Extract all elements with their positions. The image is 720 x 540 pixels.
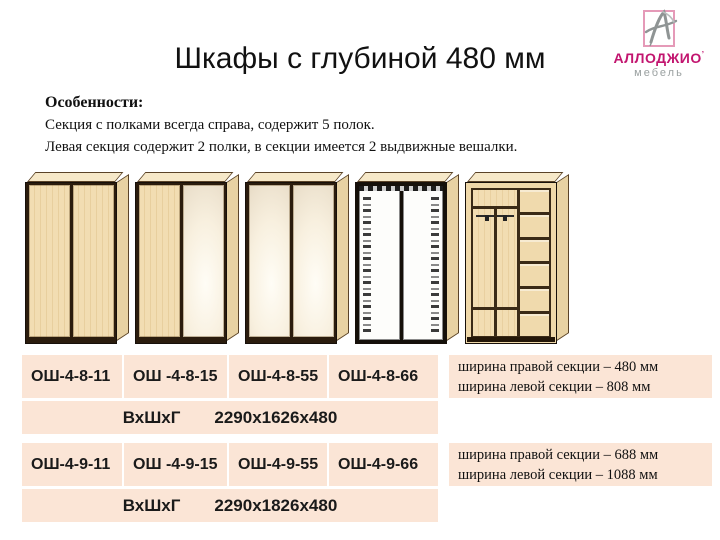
model-codes-row: ОШ-4-9-11 ОШ -4-9-15 ОШ-4-9-55 ОШ-4-9-66 [22, 443, 438, 486]
wood-door [73, 185, 114, 337]
feature-line: Секция с полками всегда справа, содержит… [45, 114, 645, 136]
mirror-door [183, 185, 224, 337]
wardrobe-top-panel [247, 172, 343, 182]
note-line: ширина левой секции – 808 мм [458, 377, 703, 397]
wardrobe-side-panel [336, 174, 349, 341]
dims-value: 2290х1826х480 [214, 496, 337, 516]
model-cell: ОШ-4-8-66 [329, 355, 438, 398]
wardrobe-side-panel [556, 174, 569, 341]
note-line: ширина левой секции – 1088 мм [458, 465, 703, 485]
wood-door [29, 185, 70, 337]
note-line: ширина правой секции – 688 мм [458, 445, 703, 465]
model-cell: ОШ-4-9-66 [329, 443, 438, 486]
hanging-section [473, 190, 520, 336]
dims-label: ВхШхГ [123, 496, 181, 516]
rail-hook [485, 215, 489, 221]
model-cell: ОШ-4-9-55 [229, 443, 327, 486]
wardrobe-image-wood-mirror [135, 172, 239, 344]
dimensions-row: ВхШхГ 2290х1626х480 [22, 401, 438, 434]
section-divider [494, 206, 497, 336]
wardrobe-front [355, 182, 447, 344]
model-cell: ОШ -4-9-15 [124, 443, 227, 486]
wardrobe-images-row [25, 172, 569, 344]
wardrobe-image-ornament-panels [355, 172, 459, 344]
wardrobe-image-wood-wood [25, 172, 129, 344]
mirror-door [293, 185, 334, 337]
shelf-cell [520, 190, 549, 215]
wardrobe-top-panel [357, 172, 453, 182]
wood-door [139, 185, 180, 337]
wardrobe-image-interior [465, 172, 569, 344]
dimensions-row: ВхШхГ 2290х1826х480 [22, 489, 438, 522]
wardrobe-front [135, 182, 227, 344]
model-cell: ОШ-4-9-11 [22, 443, 122, 486]
slide: АЛЛОДЖИО’ мебель Шкафы с глубиной 480 мм… [0, 0, 720, 540]
wardrobe-interior [465, 182, 557, 344]
model-codes-row: ОШ-4-8-11 ОШ -4-8-15 ОШ-4-8-55 ОШ-4-8-66 [22, 355, 438, 398]
feature-line: Левая секция содержит 2 полки, в секции … [45, 136, 645, 158]
wardrobe-side-panel [446, 174, 459, 341]
wardrobe-top-panel [137, 172, 233, 182]
ornament-door [403, 186, 444, 340]
wardrobe-front [245, 182, 337, 344]
bottom-shelf [473, 307, 517, 310]
shelves-section [520, 190, 549, 336]
model-cell: ОШ-4-8-11 [22, 355, 122, 398]
shelf-cell [520, 264, 549, 289]
dims-value: 2290х1626х480 [214, 408, 337, 428]
features-heading: Особенности: [45, 92, 645, 114]
rail-hook [503, 215, 507, 221]
shelf-cell [520, 314, 549, 336]
note-line: ширина правой секции – 480 мм [458, 357, 703, 377]
wardrobe-top-panel [27, 172, 123, 182]
page-title: Шкафы с глубиной 480 мм [0, 42, 720, 76]
ornament-door [359, 186, 400, 340]
shelf-cell [520, 289, 549, 314]
wardrobe-side-panel [116, 174, 129, 341]
dims-label: ВхШхГ [123, 408, 181, 428]
mirror-door [249, 185, 290, 337]
model-cell: ОШ-4-8-55 [229, 355, 327, 398]
section-width-note: ширина правой секции – 688 мм ширина лев… [449, 443, 712, 486]
model-cell: ОШ -4-8-15 [124, 355, 227, 398]
section-width-note: ширина правой секции – 480 мм ширина лев… [449, 355, 712, 398]
wardrobe-front [25, 182, 117, 344]
wardrobe-image-mirror-mirror [245, 172, 349, 344]
shelf-cell [520, 215, 549, 240]
wardrobe-top-panel [467, 172, 563, 182]
features-block: Особенности: Секция с полками всегда спр… [45, 92, 645, 158]
wardrobe-side-panel [226, 174, 239, 341]
shelf-cell [520, 240, 549, 265]
